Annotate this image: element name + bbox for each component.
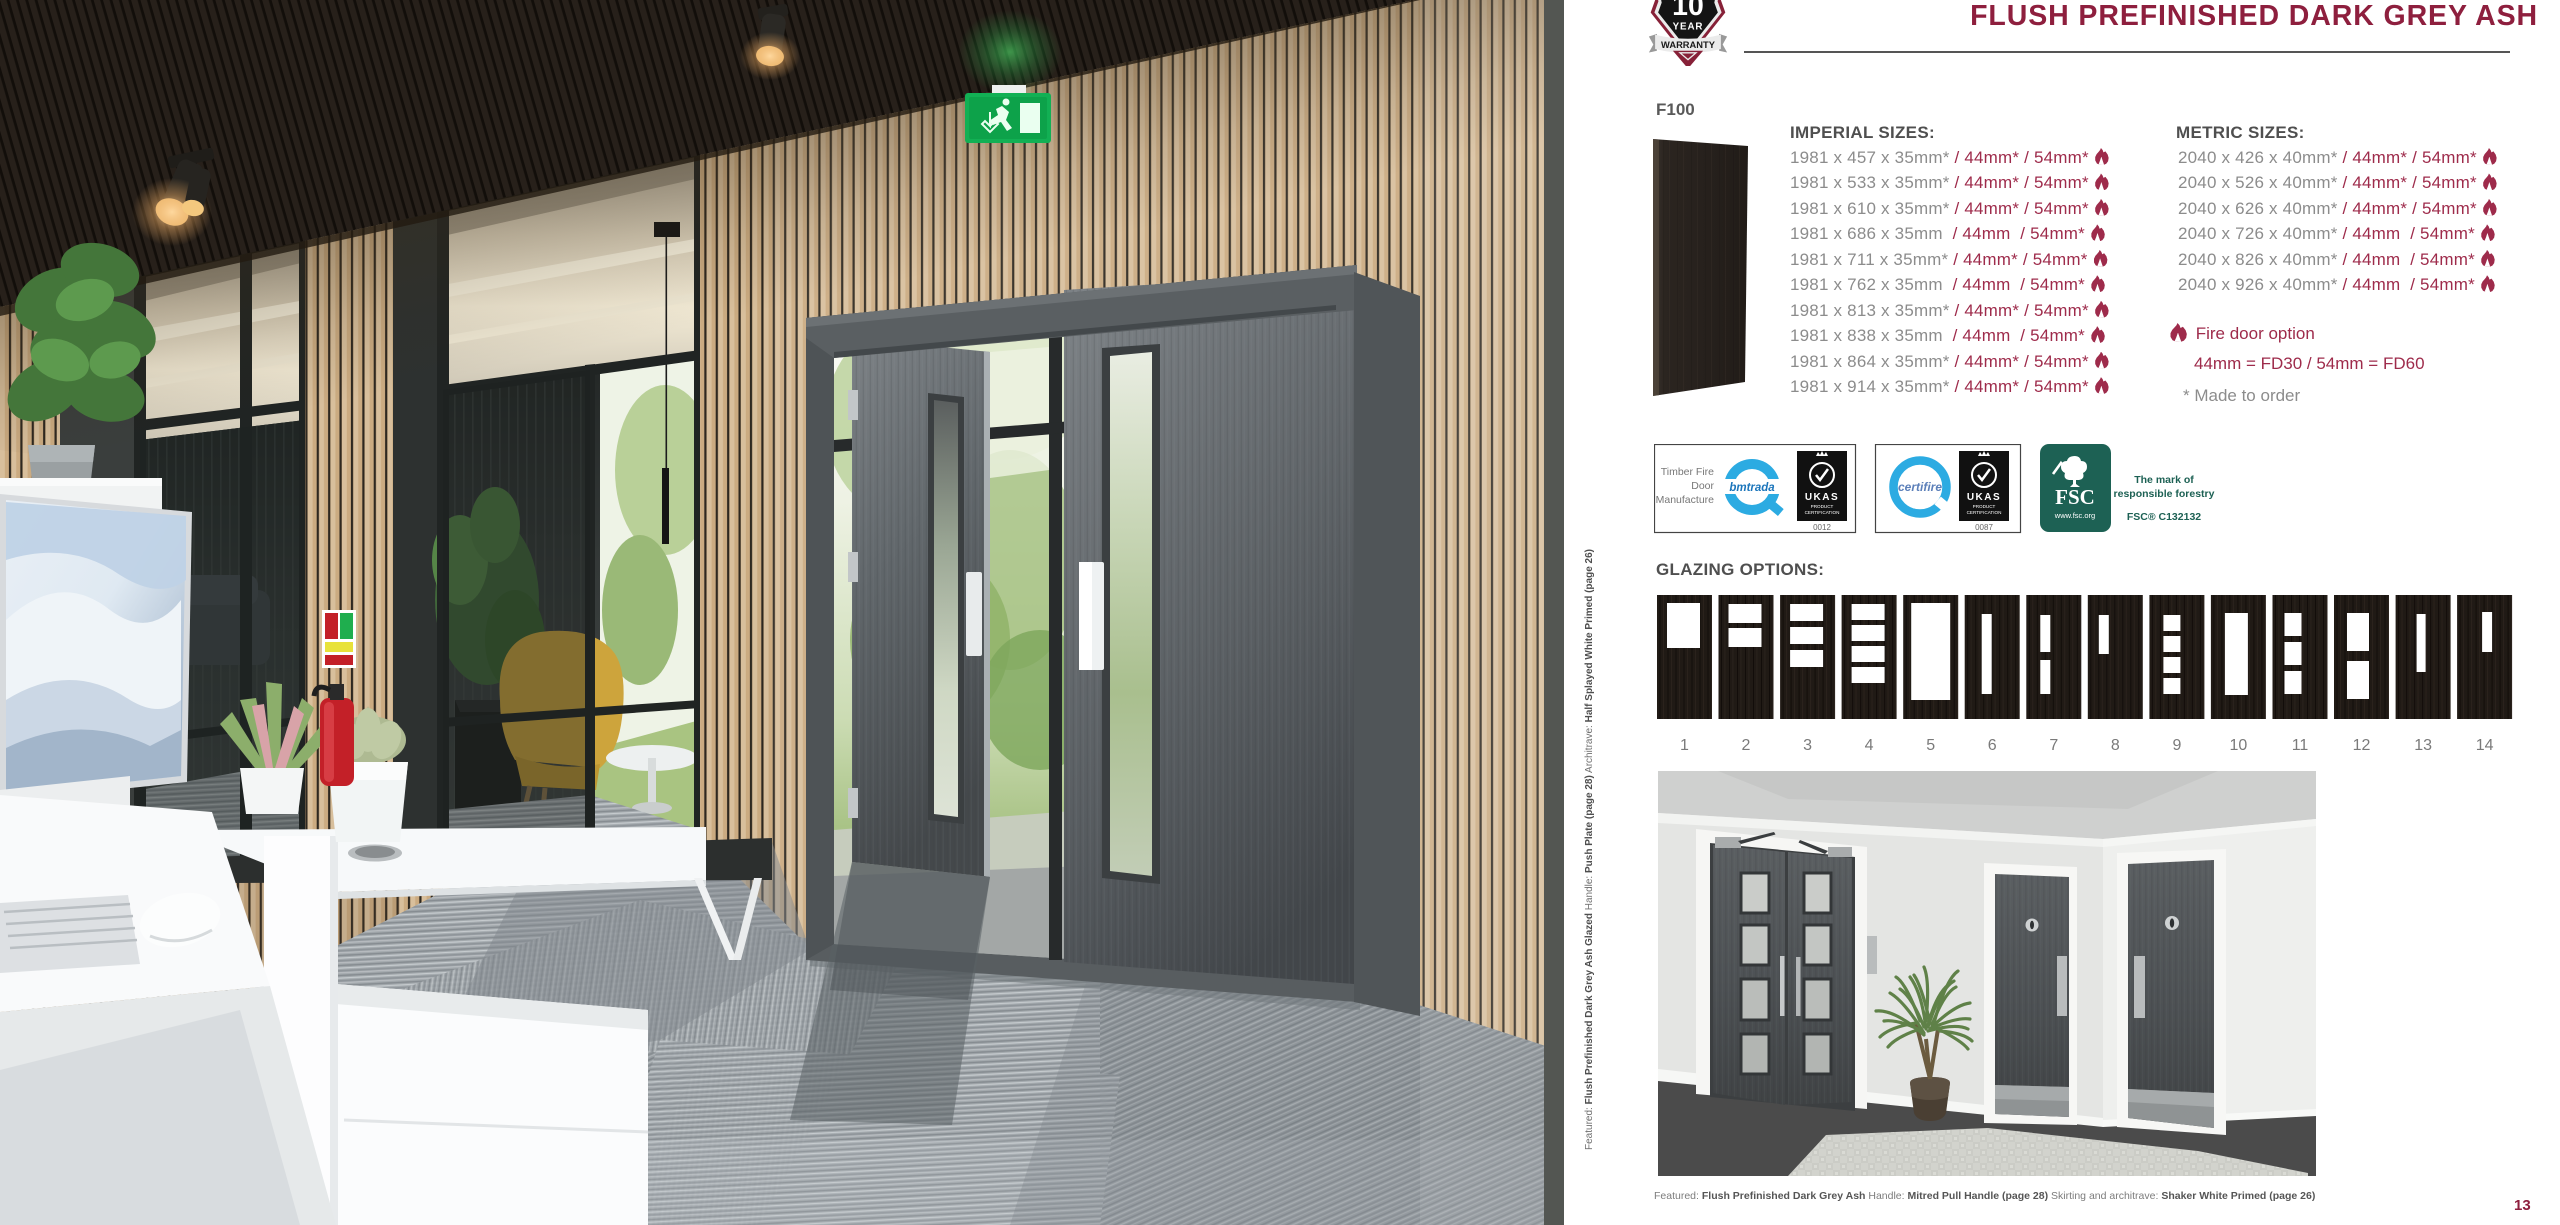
svg-text:Door: Door xyxy=(1691,480,1714,492)
svg-text:8: 8 xyxy=(2111,737,2120,754)
svg-text:UKAS: UKAS xyxy=(1967,492,2001,503)
svg-text:13: 13 xyxy=(2414,737,2432,754)
svg-text:FSC: FSC xyxy=(2055,485,2095,509)
svg-text:7: 7 xyxy=(2049,737,2058,754)
svg-text:12: 12 xyxy=(2353,737,2371,754)
svg-text:The mark of: The mark of xyxy=(2134,474,2194,486)
svg-text:9: 9 xyxy=(2172,737,2181,754)
svg-text:14: 14 xyxy=(2476,737,2494,754)
svg-text:CERTIFICATION: CERTIFICATION xyxy=(1967,510,2002,515)
svg-text:0012: 0012 xyxy=(1813,523,1831,532)
svg-text:PRODUCT: PRODUCT xyxy=(1811,504,1834,509)
svg-text:YEAR: YEAR xyxy=(1673,21,1704,32)
svg-text:5: 5 xyxy=(1926,737,1935,754)
svg-text:1: 1 xyxy=(1680,737,1689,754)
svg-text:Timber Fire: Timber Fire xyxy=(1661,466,1714,478)
svg-text:4: 4 xyxy=(1865,737,1874,754)
svg-text:www.fsc.org: www.fsc.org xyxy=(2054,511,2095,520)
svg-text:responsible forestry: responsible forestry xyxy=(2114,488,2215,500)
svg-text:10: 10 xyxy=(2230,737,2248,754)
svg-text:WARRANTY: WARRANTY xyxy=(1661,40,1716,50)
svg-text:10: 10 xyxy=(1672,0,1704,22)
svg-text:Manufacture: Manufacture xyxy=(1656,494,1715,506)
svg-text:3: 3 xyxy=(1803,737,1812,754)
svg-text:2: 2 xyxy=(1742,737,1751,754)
svg-text:CERTIFICATION: CERTIFICATION xyxy=(1805,510,1840,515)
svg-text:bmtrada: bmtrada xyxy=(1729,482,1775,494)
svg-text:UKAS: UKAS xyxy=(1805,492,1839,503)
svg-text:6: 6 xyxy=(1988,737,1997,754)
svg-text:FSC® C132132: FSC® C132132 xyxy=(2127,511,2201,523)
svg-text:11: 11 xyxy=(2292,737,2309,754)
svg-text:certifire: certifire xyxy=(1898,480,1942,494)
svg-text:PRODUCT: PRODUCT xyxy=(1973,504,1996,509)
svg-text:0087: 0087 xyxy=(1975,523,1993,532)
